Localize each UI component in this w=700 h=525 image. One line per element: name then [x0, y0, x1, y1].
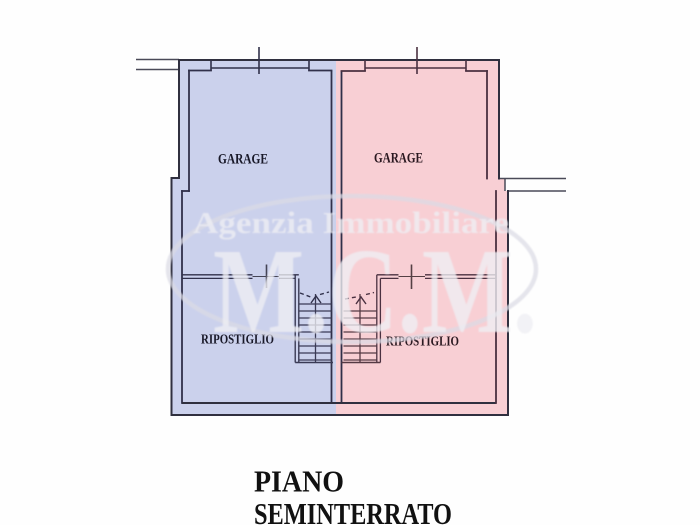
svg-text:M.C.M.: M.C.M. [213, 224, 537, 359]
svg-text:GARAGE: GARAGE [374, 151, 423, 167]
svg-text:GARAGE: GARAGE [218, 152, 268, 168]
svg-text:SEMINTERRATO: SEMINTERRATO [254, 496, 452, 525]
svg-text:PIANO: PIANO [254, 464, 344, 499]
